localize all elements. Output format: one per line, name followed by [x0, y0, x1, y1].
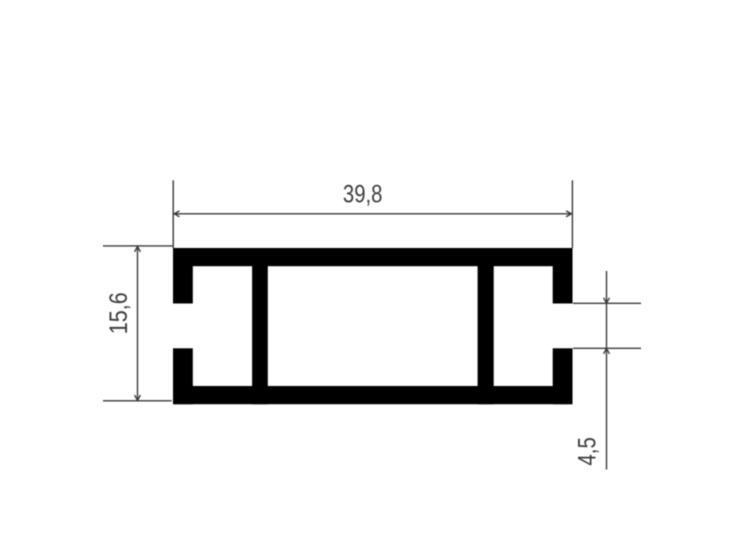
svg-text:4,5: 4,5	[574, 437, 601, 466]
svg-text:39,8: 39,8	[343, 181, 383, 209]
svg-text:15,6: 15,6	[105, 292, 133, 334]
